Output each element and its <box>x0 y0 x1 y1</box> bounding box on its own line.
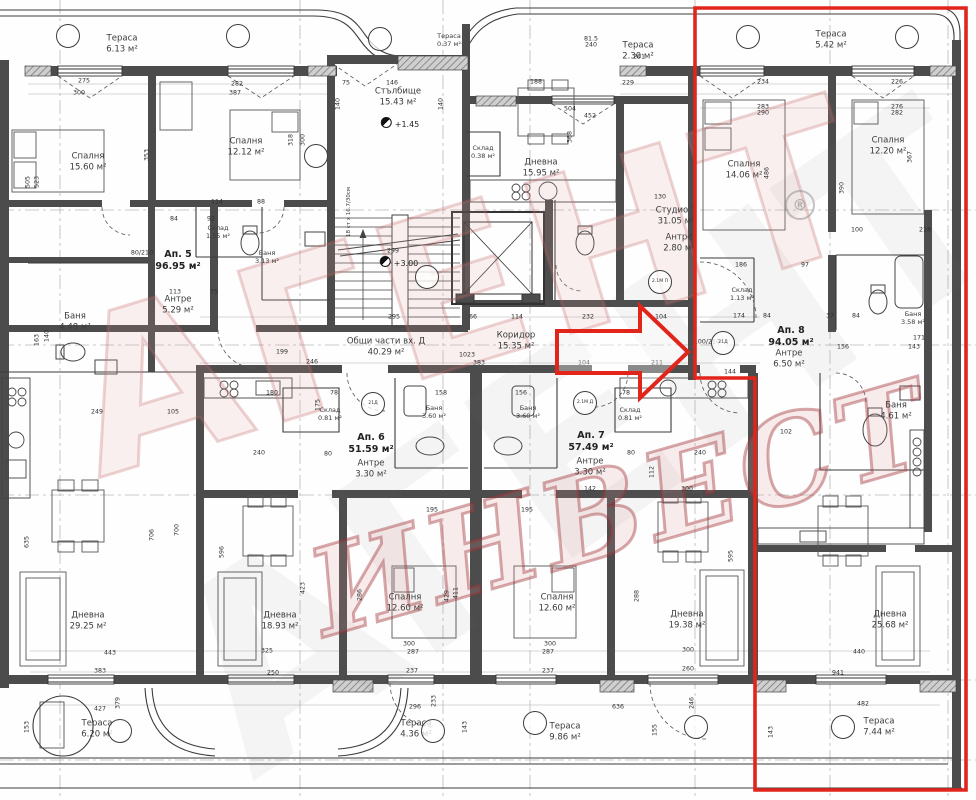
floor-plan-page: { "watermark": { "line1": "АГЕНТ", "line… <box>0 0 976 800</box>
highlight-arrow-icon <box>557 306 688 398</box>
apartment-highlight-outline <box>695 8 966 790</box>
highlight-overlay <box>0 0 976 800</box>
